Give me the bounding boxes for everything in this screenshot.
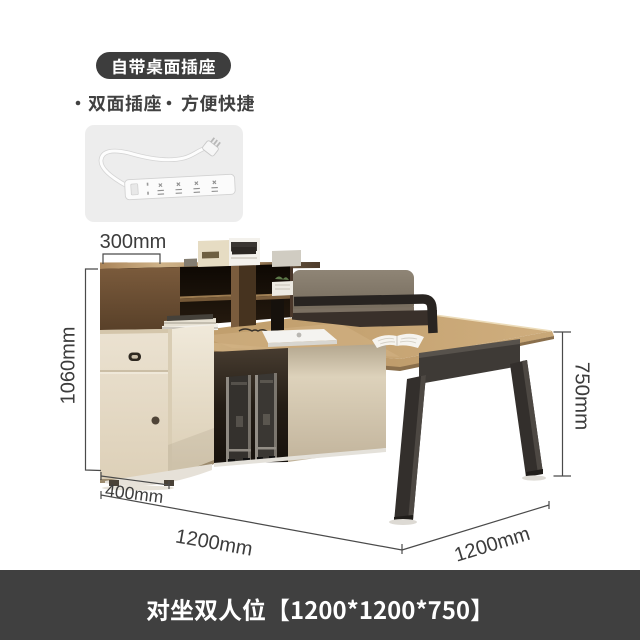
- svg-text:1200mm: 1200mm: [452, 523, 533, 567]
- svg-text:750mm: 750mm: [571, 362, 594, 430]
- svg-text:1060mm: 1060mm: [58, 327, 80, 405]
- svg-text:1200mm: 1200mm: [174, 526, 254, 561]
- svg-text:300mm: 300mm: [100, 231, 167, 253]
